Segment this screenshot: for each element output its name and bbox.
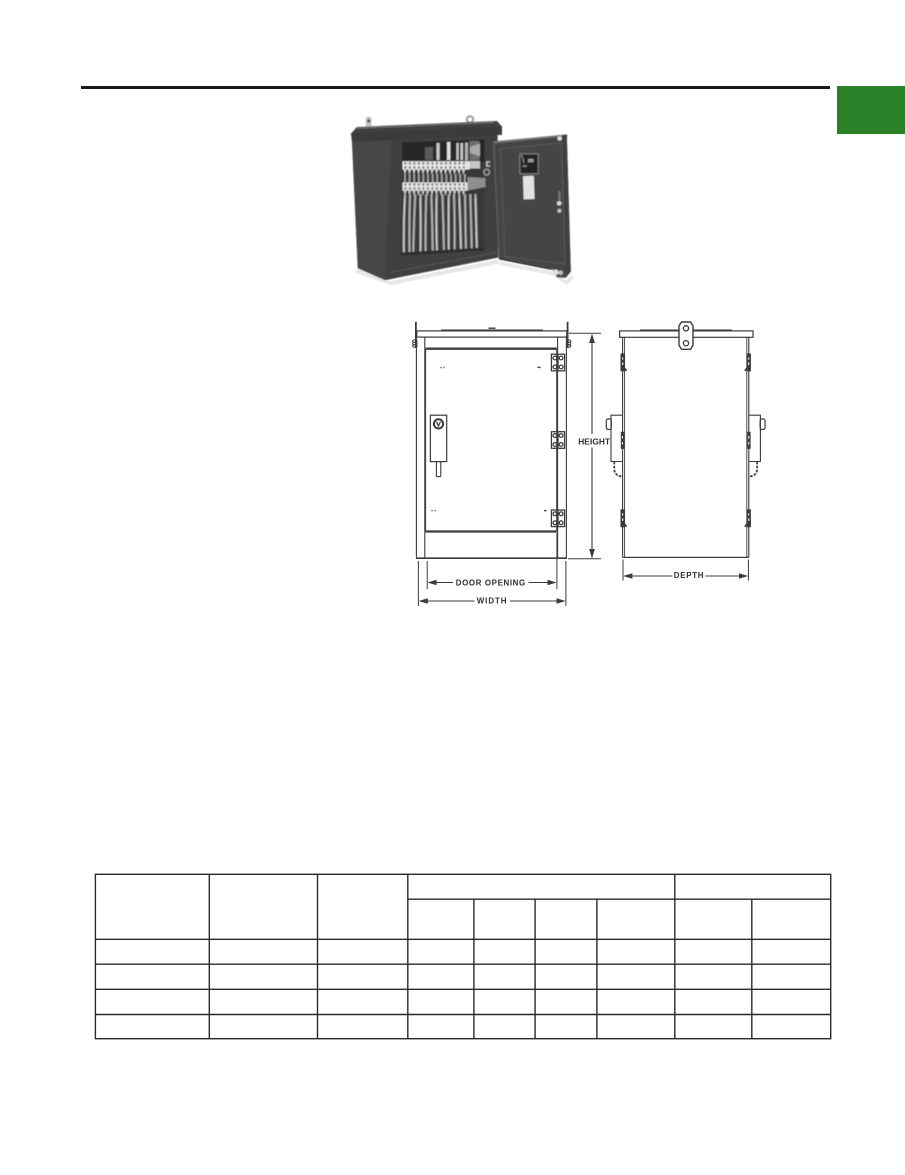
svg-text:DOOR OPENING: DOOR OPENING xyxy=(456,578,526,587)
svg-text:HEIGHT: HEIGHT xyxy=(578,437,610,447)
svg-text:WIDTH: WIDTH xyxy=(477,597,508,606)
svg-text:DEPTH: DEPTH xyxy=(674,571,705,580)
